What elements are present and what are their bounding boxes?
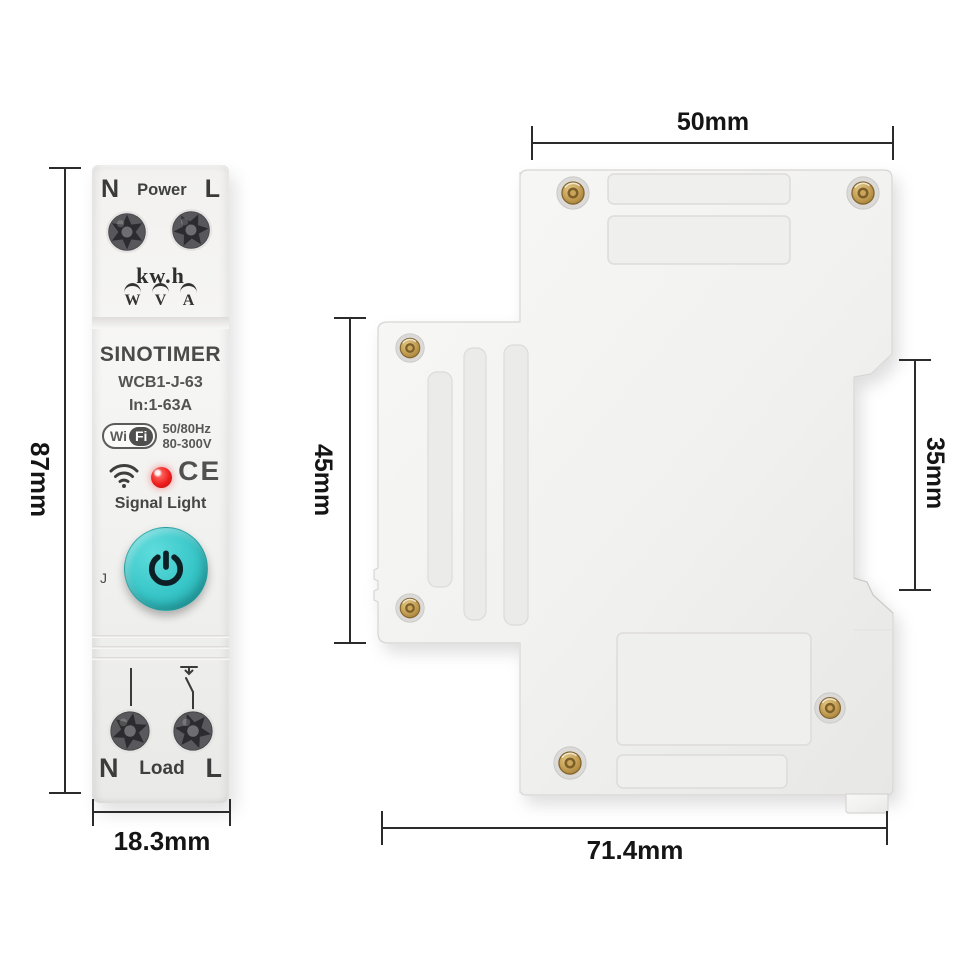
signal-light-label: Signal Light — [92, 495, 229, 513]
brand-name: SINOTIMER — [92, 343, 229, 367]
terminal-l-label: L — [205, 753, 222, 784]
signal-icon-row: CE — [92, 460, 229, 494]
wifi-badge: Wi Fi — [102, 423, 157, 449]
recessed-panel — [608, 174, 790, 204]
terminal-screw-icon — [170, 708, 216, 754]
terminal-screw-icon — [169, 208, 213, 252]
circuit-lead-line — [130, 668, 132, 706]
dim-label-87mm: 87mm — [24, 442, 55, 517]
terminal-l-label: L — [205, 175, 220, 204]
case-groove — [428, 372, 452, 587]
brass-screw — [815, 693, 845, 723]
case-groove — [464, 348, 486, 620]
dim-line — [349, 318, 351, 644]
breaker-side-view — [340, 100, 940, 880]
volt-symbol: V — [155, 293, 167, 308]
breaker-front-view: N Power L — [92, 165, 229, 803]
brass-screw — [847, 177, 879, 209]
wifi-signal-icon — [108, 462, 140, 489]
voltage-rating: 80-300V — [162, 436, 211, 451]
wifi-badge-wi: Wi — [110, 428, 127, 444]
model-number: WCB1-J-63 — [92, 374, 229, 392]
dim-tick — [334, 317, 366, 319]
brass-screw — [396, 334, 425, 363]
case-ridge — [92, 646, 229, 649]
power-label: Power — [137, 181, 187, 200]
meter-symbols: W V A — [92, 283, 229, 308]
brass-screw — [396, 594, 425, 623]
watt-symbol: W — [125, 293, 141, 308]
current-rating: In:1-63A — [92, 397, 229, 415]
terminal-n-label: N — [99, 753, 119, 784]
recessed-panel — [617, 755, 787, 788]
brass-screw — [554, 747, 586, 779]
dim-label-50mm: 50mm — [532, 108, 894, 137]
frequency-rating: 50/80Hz — [162, 421, 211, 436]
product-dimension-diagram: 87mm N Power L — [0, 0, 960, 960]
j-marking: J — [100, 570, 107, 586]
amp-symbol: A — [183, 293, 195, 308]
dim-tick — [899, 589, 931, 591]
dim-label-18.3mm: 18.3mm — [92, 826, 232, 857]
recessed-panel — [608, 216, 790, 264]
bottom-terminal-labels: N Load L — [92, 753, 229, 784]
wifi-spec-row: Wi Fi 50/80Hz 80-300V — [102, 421, 222, 451]
case-groove — [504, 345, 528, 625]
power-icon — [143, 546, 189, 592]
dim-line — [382, 827, 888, 829]
dim-tick — [229, 799, 231, 826]
dim-tick — [49, 792, 81, 794]
brass-screw — [557, 177, 589, 209]
status-led — [151, 467, 172, 488]
case-seam — [92, 317, 229, 329]
case-ridge — [92, 635, 229, 638]
dim-label-45mm: 45mm — [308, 444, 337, 516]
case-ridge — [92, 657, 229, 660]
terminal-screw-icon — [107, 708, 153, 754]
dim-label-71.4mm: 71.4mm — [382, 835, 888, 866]
power-button — [124, 527, 208, 611]
ce-mark: CE — [179, 456, 222, 487]
dim-tick — [334, 642, 366, 644]
terminal-screw-icon — [105, 210, 149, 254]
load-label: Load — [139, 758, 184, 780]
dim-tick — [92, 799, 94, 826]
dim-tick — [899, 359, 931, 361]
dim-line — [914, 360, 916, 591]
din-bottom-tab — [846, 794, 888, 813]
dim-line — [64, 168, 66, 793]
top-terminal-labels: N Power L — [92, 175, 229, 204]
dim-tick — [49, 167, 81, 169]
recessed-panel — [617, 633, 811, 745]
terminal-n-label: N — [101, 175, 119, 204]
dim-label-35mm: 35mm — [920, 437, 949, 509]
wifi-badge-fi: Fi — [129, 427, 153, 446]
dim-line — [93, 811, 231, 813]
dim-line — [532, 142, 894, 144]
